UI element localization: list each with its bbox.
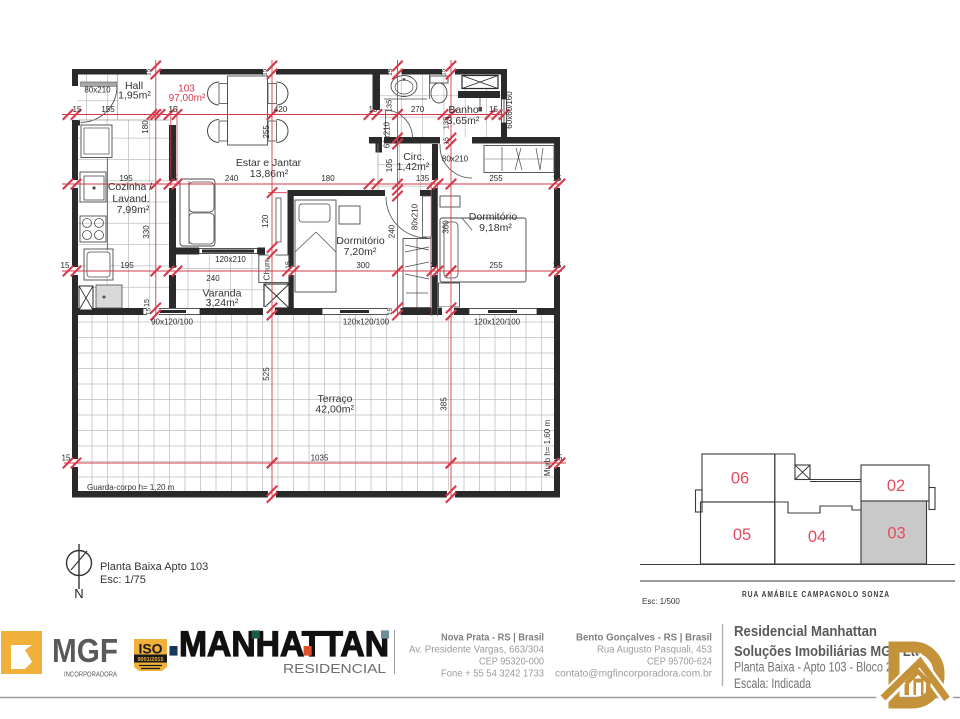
svg-text:15: 15 (387, 68, 394, 76)
svg-text:180: 180 (141, 120, 150, 134)
svg-text:Escala: Indicada: Escala: Indicada (734, 676, 811, 691)
svg-text:Planta Baixa Apto 103: Planta Baixa Apto 103 (100, 561, 208, 573)
svg-text:135: 135 (385, 100, 394, 113)
svg-text:15: 15 (387, 308, 394, 316)
svg-text:06: 06 (731, 470, 749, 488)
svg-text:80x210: 80x210 (84, 86, 111, 95)
svg-text:80x210: 80x210 (442, 155, 469, 164)
svg-text:Murb h= 1,60 m: Murb h= 1,60 m (543, 420, 552, 477)
svg-text:1,42m²: 1,42m² (397, 161, 430, 173)
svg-text:60x60/160: 60x60/160 (505, 91, 514, 129)
svg-text:15: 15 (146, 308, 153, 316)
svg-text:15: 15 (168, 261, 177, 270)
svg-text:CEP 95320-000: CEP 95320-000 (479, 656, 544, 668)
svg-text:7,99m²: 7,99m² (117, 204, 150, 216)
svg-text:360: 360 (442, 220, 451, 234)
svg-text:MGF: MGF (52, 632, 118, 669)
svg-text:240: 240 (206, 274, 220, 283)
svg-text:15: 15 (444, 137, 451, 145)
svg-text:255: 255 (262, 125, 271, 139)
svg-text:15: 15 (262, 68, 269, 76)
svg-text:3,65m²: 3,65m² (447, 115, 480, 127)
svg-text:MANHATTAN: MANHATTAN (179, 625, 389, 664)
svg-text:15: 15 (146, 68, 153, 76)
svg-text:Rua Augusto Pasquali, 453: Rua Augusto Pasquali, 453 (597, 644, 712, 656)
svg-text:15: 15 (61, 261, 70, 270)
svg-text:90x120/100: 90x120/100 (151, 318, 193, 327)
svg-text:9,18m²: 9,18m² (479, 222, 512, 234)
svg-text:15: 15 (554, 454, 563, 463)
svg-text:9001/2015: 9001/2015 (138, 657, 164, 663)
svg-text:97,00m²: 97,00m² (169, 93, 206, 104)
svg-text:120x120/100: 120x120/100 (474, 318, 521, 327)
svg-text:RESIDENCIAL: RESIDENCIAL (283, 662, 386, 676)
svg-text:80x210: 80x210 (411, 203, 420, 230)
svg-text:Guarda-corpo h= 1,20 m: Guarda-corpo h= 1,20 m (87, 483, 175, 492)
svg-text:155: 155 (101, 105, 115, 114)
svg-text:15: 15 (73, 105, 82, 114)
svg-text:120x210: 120x210 (215, 255, 246, 264)
svg-text:03: 03 (887, 525, 905, 543)
svg-text:15: 15 (369, 105, 378, 114)
svg-text:7,20m²: 7,20m² (344, 246, 377, 258)
svg-text:240: 240 (388, 224, 397, 238)
svg-text:15: 15 (169, 105, 178, 114)
svg-text:1035: 1035 (311, 454, 329, 463)
svg-text:Cozinha /: Cozinha / (108, 181, 152, 193)
svg-text:Fone + 55 54 3242 1733: Fone + 55 54 3242 1733 (441, 668, 544, 680)
svg-text:1,95m²: 1,95m² (118, 90, 151, 102)
svg-text:120: 120 (261, 214, 270, 228)
svg-text:15: 15 (553, 261, 562, 270)
svg-text:240: 240 (225, 174, 239, 183)
svg-text:15: 15 (431, 261, 438, 269)
svg-text:RUA AMÁBILE CAMPAGNOLO SONZA: RUA AMÁBILE CAMPAGNOLO SONZA (742, 590, 890, 599)
svg-text:135: 135 (416, 174, 430, 183)
svg-text:15: 15 (62, 454, 71, 463)
svg-text:420: 420 (274, 105, 288, 114)
svg-text:02: 02 (887, 477, 905, 495)
svg-text:Churr.: Churr. (262, 257, 272, 280)
svg-text:15: 15 (168, 174, 177, 183)
svg-text:N: N (74, 586, 83, 601)
svg-text:525: 525 (262, 367, 271, 381)
svg-text:270: 270 (411, 105, 425, 114)
svg-text:195: 195 (120, 261, 134, 270)
svg-text:385: 385 (440, 397, 449, 411)
svg-text:15: 15 (489, 105, 498, 114)
svg-text:42,00m²: 42,00m² (315, 404, 354, 416)
svg-text:255: 255 (489, 174, 503, 183)
svg-text:330: 330 (142, 225, 151, 239)
svg-text:300: 300 (356, 261, 370, 270)
svg-text:Planta Baixa - Apto 103 - Bloc: Planta Baixa - Apto 103 - Bloco 2 (734, 660, 892, 675)
svg-text:255: 255 (489, 261, 503, 270)
svg-text:15: 15 (286, 261, 293, 269)
svg-text:INCORPORADORA: INCORPORADORA (64, 670, 117, 679)
svg-text:05: 05 (733, 526, 751, 544)
svg-text:60x210: 60x210 (383, 121, 392, 148)
svg-text:180: 180 (321, 174, 335, 183)
svg-text:Av. Presidente Vargas, 663/304: Av. Presidente Vargas, 663/304 (409, 644, 544, 656)
svg-text:04: 04 (808, 528, 826, 546)
svg-text:Esc: 1/500: Esc: 1/500 (642, 597, 680, 606)
svg-text:3,24m²: 3,24m² (206, 297, 239, 309)
svg-text:15: 15 (553, 174, 562, 183)
svg-text:ISO: ISO (138, 641, 162, 657)
svg-text:Bento Gonçalves - RS | Brasil: Bento Gonçalves - RS | Brasil (576, 632, 712, 644)
svg-text:15: 15 (260, 248, 267, 256)
svg-text:CEP 95700-624: CEP 95700-624 (647, 656, 712, 668)
svg-text:120x120/100: 120x120/100 (343, 318, 390, 327)
svg-text:Residencial Manhattan: Residencial Manhattan (734, 623, 877, 640)
svg-text:15: 15 (144, 299, 151, 307)
svg-text:105: 105 (385, 158, 394, 172)
svg-text:15: 15 (441, 68, 448, 76)
svg-text:contato@mgfincorporadora.com.b: contato@mgfincorporadora.com.br (555, 668, 712, 680)
svg-text:Esc: 1/75: Esc: 1/75 (100, 574, 146, 586)
svg-text:13,86m²: 13,86m² (250, 168, 289, 180)
svg-text:Nova Prata - RS | Brasil: Nova Prata - RS | Brasil (441, 632, 544, 644)
